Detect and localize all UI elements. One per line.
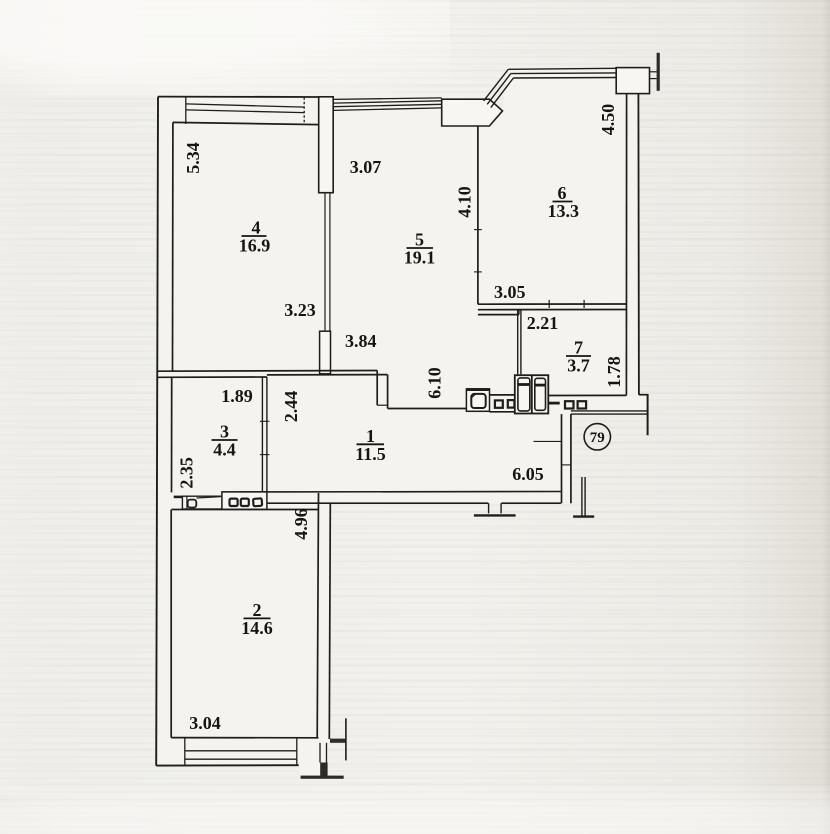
svg-text:3.05: 3.05 xyxy=(494,282,526,302)
svg-text:2.35: 2.35 xyxy=(177,457,197,489)
svg-text:3.23: 3.23 xyxy=(284,300,316,320)
svg-text:11.5: 11.5 xyxy=(355,444,386,464)
svg-text:13.3: 13.3 xyxy=(548,201,580,221)
svg-text:4.50: 4.50 xyxy=(598,104,618,136)
svg-text:6: 6 xyxy=(558,183,567,203)
svg-text:6.05: 6.05 xyxy=(512,464,544,484)
svg-text:5.34: 5.34 xyxy=(183,142,203,174)
svg-text:4.10: 4.10 xyxy=(455,186,475,218)
svg-text:4.96: 4.96 xyxy=(291,508,311,540)
svg-text:3.04: 3.04 xyxy=(189,713,221,733)
svg-text:4.4: 4.4 xyxy=(213,440,236,460)
svg-text:1.78: 1.78 xyxy=(604,356,624,388)
svg-text:79: 79 xyxy=(590,430,605,446)
svg-text:2.21: 2.21 xyxy=(527,313,559,333)
svg-text:14.6: 14.6 xyxy=(241,618,273,638)
svg-text:3.7: 3.7 xyxy=(567,356,590,376)
svg-text:1.89: 1.89 xyxy=(221,386,253,406)
svg-text:6.10: 6.10 xyxy=(425,367,445,399)
svg-text:16.9: 16.9 xyxy=(239,236,271,256)
svg-text:3.07: 3.07 xyxy=(350,157,382,177)
svg-text:19.1: 19.1 xyxy=(404,248,436,268)
svg-text:2.44: 2.44 xyxy=(281,391,301,423)
svg-text:3.84: 3.84 xyxy=(345,331,377,351)
